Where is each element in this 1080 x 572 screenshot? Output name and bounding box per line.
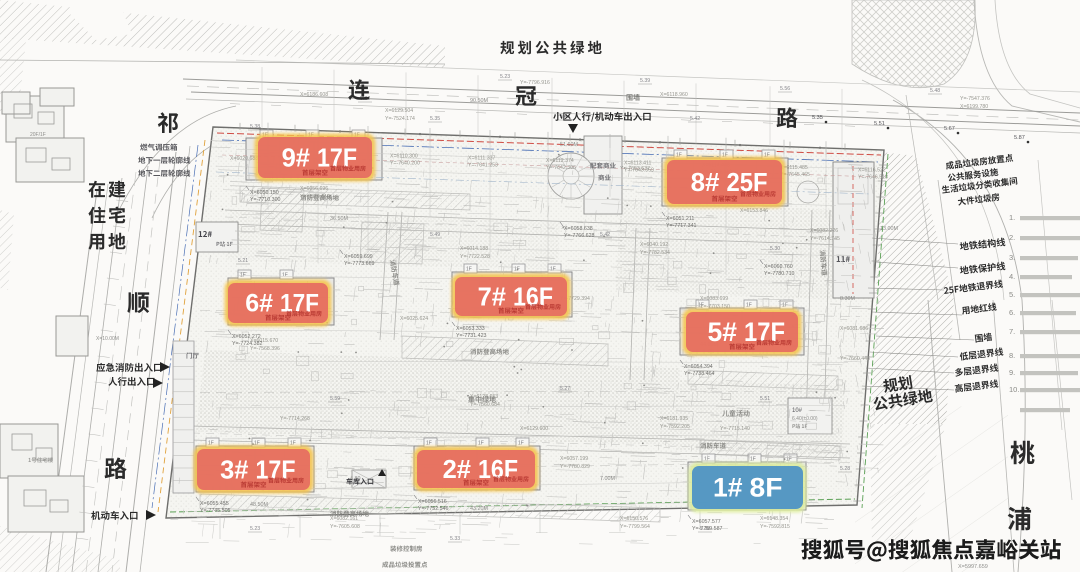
svg-text:Y=-7731.423: Y=-7731.423: [456, 333, 487, 339]
svg-text:1F: 1F: [782, 303, 788, 309]
svg-text:1.: 1.: [1009, 213, 1015, 222]
svg-text:7.: 7.: [1009, 327, 1015, 336]
svg-text:51.60M: 51.60M: [560, 142, 578, 148]
svg-text:X=6050.150: X=6050.150: [250, 190, 279, 196]
svg-text:X=6112.374: X=6112.374: [546, 158, 574, 164]
svg-text:X=6186.608: X=6186.608: [300, 92, 328, 98]
svg-text:5.39: 5.39: [640, 78, 650, 84]
svg-text:5.51: 5.51: [874, 121, 885, 127]
svg-text:90.50M: 90.50M: [470, 98, 488, 104]
svg-text:X=6052.272: X=6052.272: [232, 334, 261, 340]
svg-text:Y=-7714.268: Y=-7714.268: [280, 416, 310, 422]
svg-text:5.27: 5.27: [560, 386, 570, 392]
svg-text:9.: 9.: [1009, 368, 1015, 377]
svg-text:5.42: 5.42: [600, 232, 610, 238]
svg-text:X=5997.659: X=5997.659: [958, 564, 988, 570]
svg-text:36.50M: 36.50M: [330, 216, 348, 222]
svg-text:Y=-7547.376: Y=-7547.376: [960, 96, 990, 102]
svg-text:X=10.00M: X=10.00M: [96, 336, 119, 342]
svg-text:Y=-7715.140: Y=-7715.140: [720, 426, 750, 432]
svg-text:5.: 5.: [1009, 290, 1015, 299]
svg-text:1F: 1F: [518, 441, 524, 447]
svg-text:X=6111.337: X=6111.337: [468, 156, 495, 162]
svg-text:X=6057.577: X=6057.577: [692, 519, 721, 525]
svg-text:5.38: 5.38: [250, 124, 260, 130]
svg-text:5.23: 5.23: [500, 74, 510, 80]
svg-text:X=6118.960: X=6118.960: [660, 92, 688, 98]
svg-text:5.28: 5.28: [840, 466, 850, 472]
svg-text:4.: 4.: [1009, 272, 1015, 281]
svg-text:X=6199.780: X=6199.780: [960, 104, 988, 110]
svg-text:X=6083.699: X=6083.699: [700, 296, 728, 302]
svg-text:Y=-7724.382: Y=-7724.382: [232, 341, 263, 347]
svg-text:5.49: 5.49: [430, 232, 440, 238]
svg-text:1F: 1F: [466, 267, 472, 273]
svg-text:7.00M: 7.00M: [600, 476, 615, 482]
svg-text:X=6056.516: X=6056.516: [418, 499, 447, 505]
svg-text:X=6148.354: X=6148.354: [760, 516, 788, 522]
svg-text:1F: 1F: [282, 273, 288, 279]
svg-text:X=6058.638: X=6058.638: [564, 226, 593, 232]
svg-text:10.: 10.: [1009, 385, 1019, 394]
svg-text:X=6025.624: X=6025.624: [400, 316, 428, 322]
svg-text:5.21: 5.21: [238, 258, 248, 264]
svg-text:Y=-7738.464: Y=-7738.464: [684, 371, 715, 377]
svg-text:7#: 7#: [478, 283, 506, 311]
svg-text:X=6129.504: X=6129.504: [385, 108, 413, 114]
svg-text:X=6082.161: X=6082.161: [330, 516, 358, 522]
svg-text:5.23: 5.23: [250, 526, 260, 532]
svg-text:Y=-7780.710: Y=-7780.710: [764, 271, 795, 277]
svg-text:Y=-7759.587: Y=-7759.587: [692, 526, 723, 532]
svg-text:Y=-7560.684: Y=-7560.684: [470, 402, 500, 408]
svg-text:5.51: 5.51: [760, 396, 770, 402]
svg-text:5.33: 5.33: [450, 536, 460, 542]
svg-text:X=6055.455: X=6055.455: [200, 501, 229, 507]
svg-text:Y=-7642.306: Y=-7642.306: [546, 165, 576, 171]
svg-text:X=6020.688: X=6020.688: [230, 156, 258, 162]
svg-text:X=6057.199: X=6057.199: [560, 456, 588, 462]
svg-text:Y=-7646.518: Y=-7646.518: [858, 174, 888, 180]
svg-text:1F: 1F: [746, 303, 752, 309]
svg-text:5.42: 5.42: [690, 116, 700, 122]
svg-text:3#: 3#: [220, 456, 248, 484]
svg-text:8#: 8#: [691, 167, 720, 197]
svg-text:1F: 1F: [750, 457, 756, 463]
svg-text:Y=-7717.341: Y=-7717.341: [666, 223, 697, 229]
svg-text:Y=-7640.200: Y=-7640.200: [390, 160, 420, 166]
svg-text:8.: 8.: [1009, 351, 1015, 360]
svg-text:8.30M: 8.30M: [840, 296, 855, 302]
svg-text:Y=-7592.205: Y=-7592.205: [660, 424, 690, 430]
svg-text:5.67: 5.67: [944, 126, 955, 132]
svg-text:Y=-7766.628: Y=-7766.628: [564, 233, 595, 239]
svg-text:Y=-7605.608: Y=-7605.608: [330, 524, 360, 530]
svg-text:X=6081.686: X=6081.686: [840, 326, 868, 332]
svg-text:Y=-7745.505: Y=-7745.505: [200, 508, 231, 514]
svg-text:2#: 2#: [443, 456, 471, 484]
svg-text:1F: 1F: [426, 441, 432, 447]
svg-text:5.35: 5.35: [812, 115, 823, 121]
svg-text:X=6153.846: X=6153.846: [740, 208, 768, 214]
svg-text:Y=-7641.253: Y=-7641.253: [468, 163, 498, 169]
svg-text:1F: 1F: [478, 441, 484, 447]
svg-text:48.50M: 48.50M: [250, 502, 268, 508]
svg-text:X=6060.760: X=6060.760: [764, 264, 793, 270]
svg-text:20F/1F: 20F/1F: [30, 132, 46, 138]
svg-text:Y=-7722.528: Y=-7722.528: [460, 254, 490, 260]
svg-text:5.30: 5.30: [770, 246, 780, 252]
svg-text:5.87: 5.87: [1014, 135, 1025, 141]
svg-text:X=6116.522: X=6116.522: [858, 167, 886, 173]
svg-text:Y=-7614.745: Y=-7614.745: [810, 236, 840, 242]
svg-text:Y=-7710.300: Y=-7710.300: [250, 197, 281, 203]
svg-text:5.56: 5.56: [780, 86, 790, 92]
svg-text:5.59: 5.59: [330, 396, 340, 402]
svg-text:2.: 2.: [1009, 233, 1015, 242]
svg-text:6#: 6#: [245, 290, 273, 318]
svg-text:Y=-7796.916: Y=-7796.916: [520, 80, 550, 86]
svg-text:Y=-7773.669: Y=-7773.669: [344, 261, 375, 267]
svg-text:1F: 1F: [550, 267, 556, 273]
svg-text:43.20M: 43.20M: [470, 506, 488, 512]
svg-text:9#: 9#: [282, 144, 310, 172]
svg-text:Y=-7799.564: Y=-7799.564: [620, 524, 650, 530]
svg-text:X=6082.226: X=6082.226: [810, 228, 838, 234]
svg-text:Y=-7524.174: Y=-7524.174: [385, 116, 415, 122]
svg-text:5.48: 5.48: [930, 88, 940, 94]
svg-text:X=6110.300: X=6110.300: [390, 153, 418, 159]
svg-text:3.: 3.: [1009, 253, 1015, 262]
svg-text:X=6014.188: X=6014.188: [460, 246, 488, 252]
svg-text:5.35: 5.35: [430, 116, 440, 122]
svg-text:X=6051.211: X=6051.211: [666, 216, 694, 222]
svg-text:X=6053.333: X=6053.333: [456, 326, 485, 332]
svg-text:X=6040.192: X=6040.192: [640, 242, 668, 248]
svg-text:8F: 8F: [750, 473, 783, 503]
svg-text:6.: 6.: [1009, 308, 1015, 317]
svg-text:Y=-7653.637: Y=-7653.637: [620, 166, 650, 172]
svg-text:Y=-7780.829: Y=-7780.829: [560, 464, 590, 470]
svg-text:X=6181.935: X=6181.935: [660, 416, 688, 422]
svg-text:13.00M: 13.00M: [880, 226, 898, 232]
svg-text:5#: 5#: [708, 317, 738, 347]
svg-text:X=6056.696: X=6056.696: [300, 186, 328, 192]
svg-text:X=6150.576: X=6150.576: [620, 516, 648, 522]
svg-text:1#: 1#: [713, 473, 743, 503]
svg-text:X=6129.600: X=6129.600: [520, 426, 548, 432]
svg-text:Y=-7752.546: Y=-7752.546: [418, 506, 449, 512]
svg-text:Y=-7592.815: Y=-7592.815: [760, 524, 790, 530]
